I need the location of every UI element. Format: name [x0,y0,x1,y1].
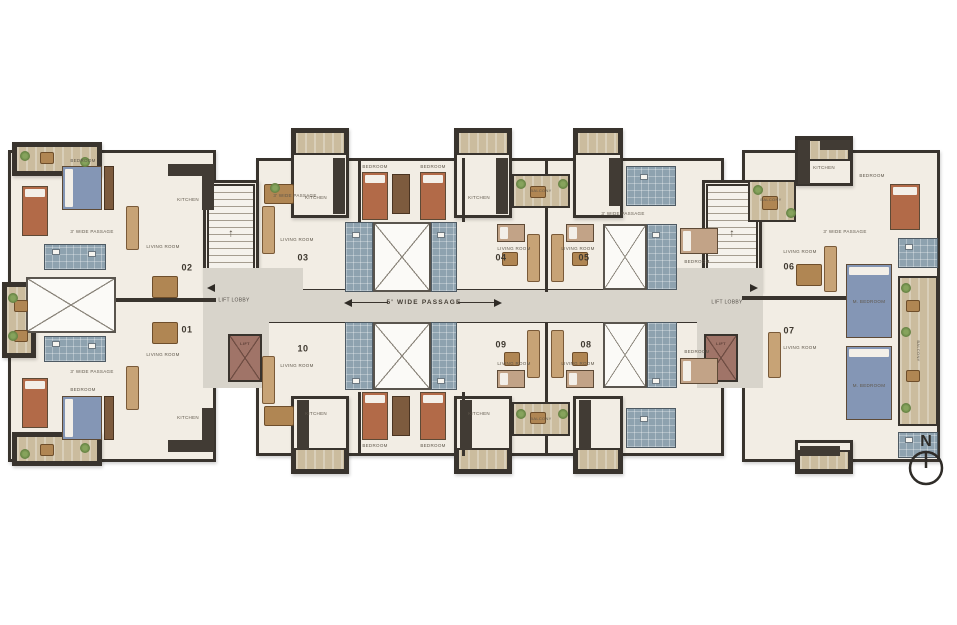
passage-arrow-line [458,302,494,303]
sofa [527,234,540,282]
lift-label-left: LIFT [240,342,250,346]
kitchen-counter [460,400,472,450]
room-label: KITCHEN [305,412,327,417]
partition-wall [358,158,361,222]
bathroom [44,336,106,362]
room-label: BEDROOM [70,159,95,164]
party-wall [116,298,216,302]
room-label: BEDROOM [684,260,709,265]
bed [566,224,594,242]
room-label: BALCONY [530,189,551,193]
sofa [262,356,275,404]
light-well [373,222,431,292]
wardrobe [104,166,114,210]
plant-icon [80,443,90,453]
north-compass-icon: N [898,428,954,490]
door-arrow [207,284,215,292]
plant-icon [901,283,911,293]
lift-lobby-left-floor [203,268,303,322]
light-well [603,322,647,388]
duct-left [26,277,116,333]
sofa [824,246,837,292]
room-label: BEDROOM [420,444,445,449]
partition-wall [462,158,465,222]
unit-number-06: 06 [783,263,794,272]
balcony-deck [576,448,620,471]
plant-icon [901,327,911,337]
room-label: ↑ [228,229,234,240]
sofa [262,206,275,254]
bath-fixture [437,378,445,384]
room-label: BEDROOM [420,165,445,170]
room-label: BALCONY [760,198,781,202]
bed [566,370,594,388]
bed [680,228,718,254]
room-label: 3' WIDE PASSAGE [273,194,316,199]
room-label: BALCONY [916,340,920,361]
plant-icon [558,409,568,419]
dining-table [264,406,294,426]
passage-label: 5' WIDE PASSAGE [386,300,461,307]
door-arrow [750,284,758,292]
bed [362,172,388,220]
bed [62,166,102,210]
kitchen-counter [579,400,591,450]
unit-number-02: 02 [181,264,192,273]
unit-number-10: 10 [297,345,308,354]
room-label: 3' WIDE PASSAGE [70,370,113,375]
room-label: BALCONY [530,417,551,421]
room-label: M. BEDROOM [853,384,886,389]
wardrobe [392,174,410,214]
partition-wall [358,392,361,456]
bath-fixture [88,251,96,257]
room-label: LIVING ROOM [280,364,313,369]
unit-number-05: 05 [578,254,589,263]
bath-fixture [437,232,445,238]
room-label: 3' WIDE PASSAGE [70,230,113,235]
kitchen-counter [798,140,810,184]
room-label: BEDROOM [362,165,387,170]
sofa [126,206,139,250]
plant-icon [8,331,18,341]
passage-arrow-left [344,299,352,307]
unit-number-08: 08 [580,341,591,350]
kitchen-counter [297,400,309,450]
bed [22,378,48,428]
wardrobe [392,396,410,436]
kitchen-counter [820,140,850,150]
room-label: KITCHEN [177,416,199,421]
balcony-deck [576,131,620,155]
kitchen-counter [333,158,345,214]
room-label: 3' WIDE PASSAGE [601,212,644,217]
bed [22,186,48,236]
room-label: KITCHEN [468,196,490,201]
wardrobe [104,396,114,440]
kitchen-counter [800,446,840,456]
bath-fixture [52,249,60,255]
room-label: BEDROOM [70,388,95,393]
sofa [126,366,139,410]
plant-icon [753,185,763,195]
bathroom [44,244,106,270]
kitchen-counter [168,164,214,176]
dining-table [152,322,178,344]
sofa [527,330,540,378]
plant-icon [20,449,30,459]
room-label: ↑ [729,229,735,240]
room-label: KITCHEN [468,412,490,417]
room-label: LIVING ROOM [497,247,530,252]
deck-chair [906,370,920,382]
unit-number-07: 07 [783,327,794,336]
unit-number-04: 04 [495,254,506,263]
plant-icon [558,179,568,189]
bed [890,184,920,230]
bed [497,370,525,388]
light-well [603,224,647,290]
bath-fixture [640,416,648,422]
plant-icon [270,183,280,193]
room-label: LIVING ROOM [561,247,594,252]
kitchen-counter [202,408,214,442]
bath-fixture [652,232,660,238]
sofa [768,332,781,378]
room-label: M. BEDROOM [853,300,886,305]
room-label: KITCHEN [813,166,835,171]
bathroom [898,238,938,268]
bath-fixture [640,174,648,180]
lift-label-right: LIFT [716,342,726,346]
room-label: LIVING ROOM [561,362,594,367]
kitchen-counter [609,158,621,206]
balcony-deck [294,131,346,155]
room-label: BEDROOM [859,174,884,179]
room-label: LIVING ROOM [497,362,530,367]
room-label: LIVING ROOM [146,353,179,358]
kitchen-counter [202,176,214,210]
bathroom [626,408,676,448]
bathroom [626,166,676,206]
bath-fixture [652,378,660,384]
bed [497,224,525,242]
bed [62,396,102,440]
sofa [551,234,564,282]
bath-fixture [905,244,913,250]
deck-chair [906,300,920,312]
balcony-deck [294,448,346,471]
plant-icon [516,409,526,419]
lift-lobby-label-left: LIFT LOBBY [218,299,249,304]
dining-table [152,276,178,298]
deck-chair [40,152,54,164]
bed [420,172,446,220]
bath-fixture [352,232,360,238]
bed [680,358,718,384]
plant-icon [901,403,911,413]
bed [362,392,388,440]
bath-fixture [352,378,360,384]
lift-lobby-label-right: LIFT LOBBY [711,301,742,306]
plant-icon [516,179,526,189]
lift-lobby-right-floor [662,268,763,322]
plant-icon [8,293,18,303]
kitchen-counter [496,158,508,214]
dining-table [796,264,822,286]
light-well [373,322,431,390]
plant-icon [786,208,796,218]
room-label: KITCHEN [177,198,199,203]
room-label: LIVING ROOM [783,346,816,351]
balcony-deck [457,131,509,155]
bath-fixture [88,343,96,349]
room-label: LIVING ROOM [783,250,816,255]
room-label: LIVING ROOM [280,238,313,243]
sofa [551,330,564,378]
party-wall [742,296,848,300]
passage-arrow-line [352,302,388,303]
unit-number-03: 03 [297,254,308,263]
deck-chair [40,444,54,456]
room-label: BEDROOM [362,444,387,449]
unit-number-09: 09 [495,341,506,350]
room-label: BEDROOM [684,350,709,355]
unit-number-01: 01 [181,326,192,335]
bed [420,392,446,440]
compass-north-label: N [920,433,932,450]
passage-arrow-right [494,299,502,307]
plant-icon [20,151,30,161]
floor-plan: 5' WIDE PASSAGE LIFT LOBBY LIFT LOBBY LI… [0,0,957,625]
bath-fixture [52,341,60,347]
room-label: 3' WIDE PASSAGE [823,230,866,235]
room-label: LIVING ROOM [146,245,179,250]
